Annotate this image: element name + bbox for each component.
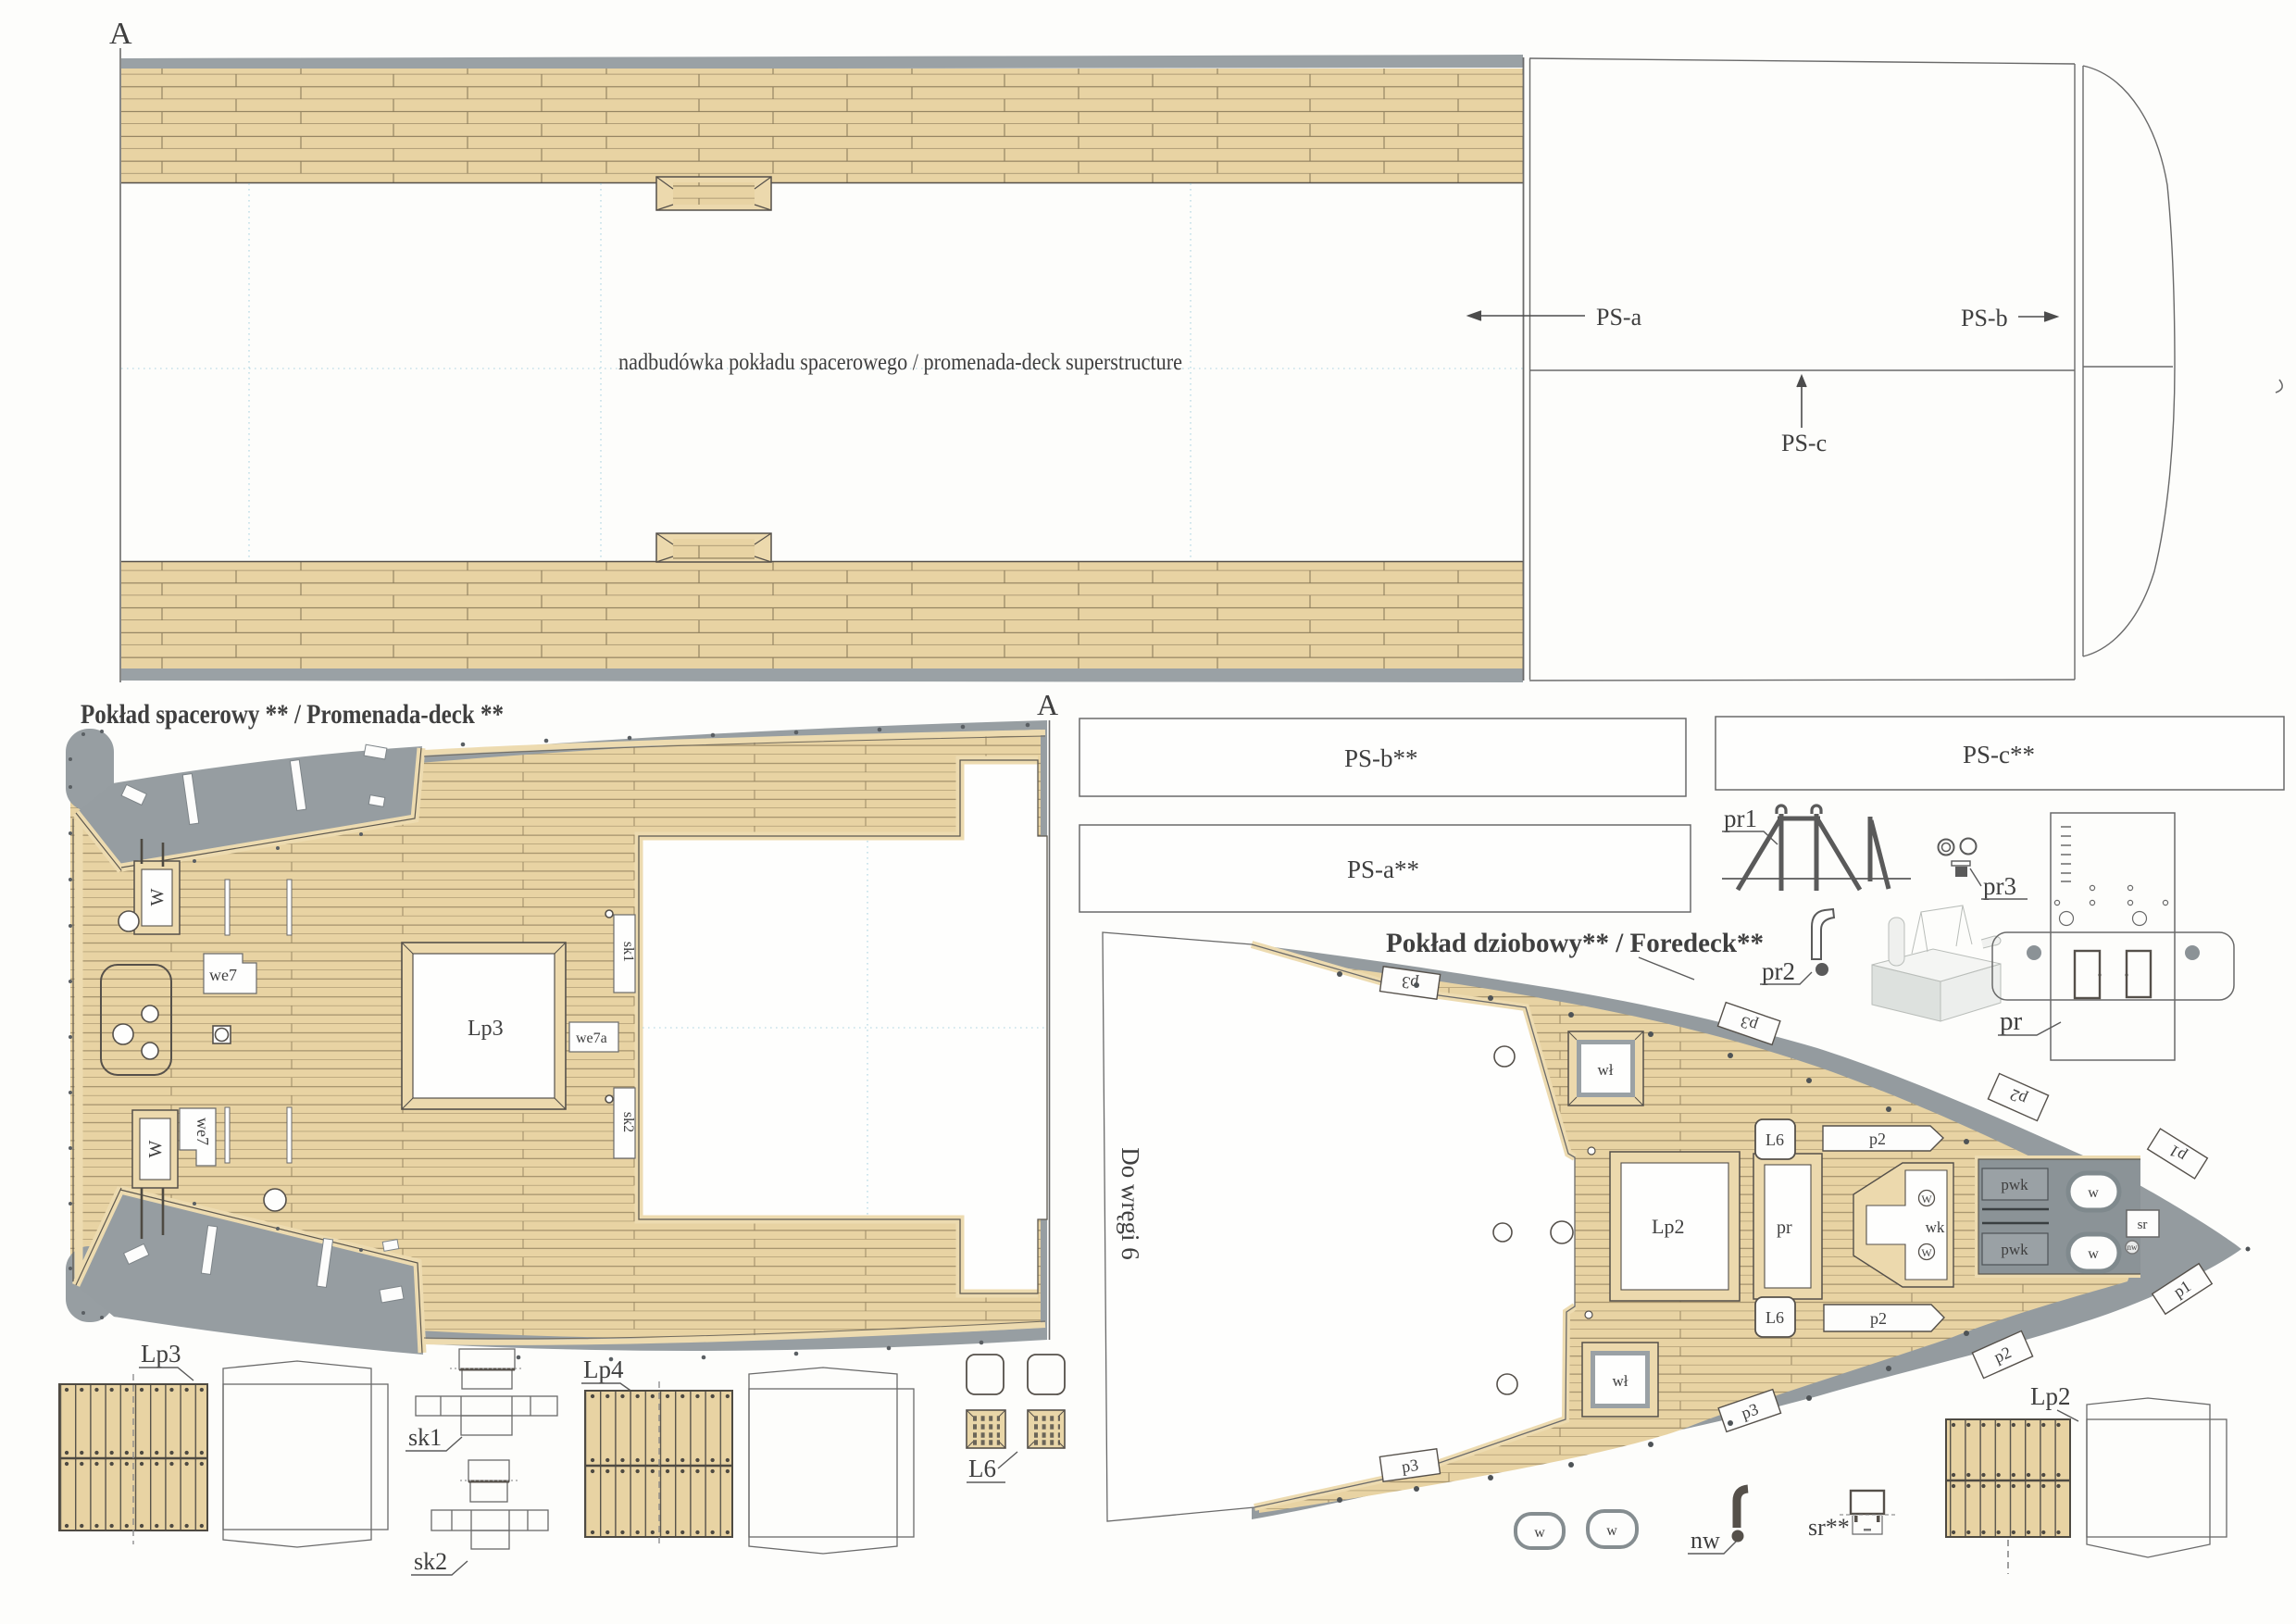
svg-text:we7: we7 [209,966,237,984]
svg-text:wk: wk [1926,1218,1945,1236]
svg-text:sr**: sr** [1808,1514,1850,1541]
svg-text:p2: p2 [1870,1309,1887,1328]
svg-text:p2: p2 [1869,1130,1886,1148]
svg-text:wł: wł [1598,1061,1614,1079]
svg-text:nw: nw [1691,1527,1720,1554]
svg-text:L6: L6 [1766,1308,1784,1327]
svg-text:W: W [145,1140,166,1157]
svg-text:Lp4: Lp4 [583,1355,624,1383]
svg-text:PS-b**: PS-b** [1344,744,1418,772]
svg-text:sr: sr [2138,1218,2148,1232]
svg-text:A: A [109,17,132,51]
svg-text:nadbudówka pokładu spacerowego: nadbudówka pokładu spacerowego / promena… [618,350,1182,375]
svg-text:PS-c**: PS-c** [1963,741,2035,768]
svg-text:w: w [2088,1246,2099,1262]
svg-text:pwk: pwk [2001,1241,2028,1258]
svg-text:Lp2: Lp2 [1652,1215,1684,1238]
svg-text:we7: we7 [193,1118,212,1145]
svg-text:we7a: we7a [576,1031,607,1046]
svg-text:W: W [1921,1246,1932,1259]
svg-text:nw: nw [2128,1243,2139,1252]
svg-text:wł: wł [1613,1372,1628,1390]
svg-text:Lp2: Lp2 [2030,1382,2071,1410]
svg-text:pr3: pr3 [1983,872,2016,900]
svg-text:W: W [147,888,168,906]
svg-text:sk2: sk2 [620,1112,636,1132]
svg-text:Lp3: Lp3 [141,1340,181,1368]
svg-text:sk1: sk1 [620,942,636,962]
svg-text:w: w [1534,1525,1545,1541]
svg-text:Lp3: Lp3 [468,1017,504,1041]
svg-text:pr: pr [2000,1006,2023,1036]
svg-text:w: w [1606,1523,1617,1539]
svg-text:pwk: pwk [2001,1176,2028,1193]
svg-text:Pokład dziobowy** / Foredeck**: Pokład dziobowy** / Foredeck** [1386,928,1764,958]
svg-text:L6: L6 [968,1455,996,1482]
svg-text:W: W [1921,1193,1932,1206]
svg-text:PS-b: PS-b [1961,305,2008,331]
svg-text:pr2: pr2 [1762,957,1795,985]
svg-text:Do wręgi 6: Do wręgi 6 [1117,1147,1144,1259]
svg-text:pr: pr [1777,1218,1792,1238]
svg-text:PS-a: PS-a [1596,304,1642,331]
svg-text:pr1: pr1 [1724,805,1757,832]
svg-text:w: w [2088,1185,2099,1201]
svg-text:Pokład spacerowy ** / Promenad: Pokład spacerowy ** / Promenada-deck ** [81,699,504,730]
svg-text:sk1: sk1 [408,1424,442,1451]
svg-text:PS-a**: PS-a** [1347,856,1419,883]
svg-text:p3: p3 [1401,1455,1420,1476]
svg-text:sk2: sk2 [414,1548,447,1575]
svg-text:L6: L6 [1766,1131,1784,1149]
svg-text:PS-c: PS-c [1781,430,1827,456]
svg-text:A: A [1037,688,1058,721]
